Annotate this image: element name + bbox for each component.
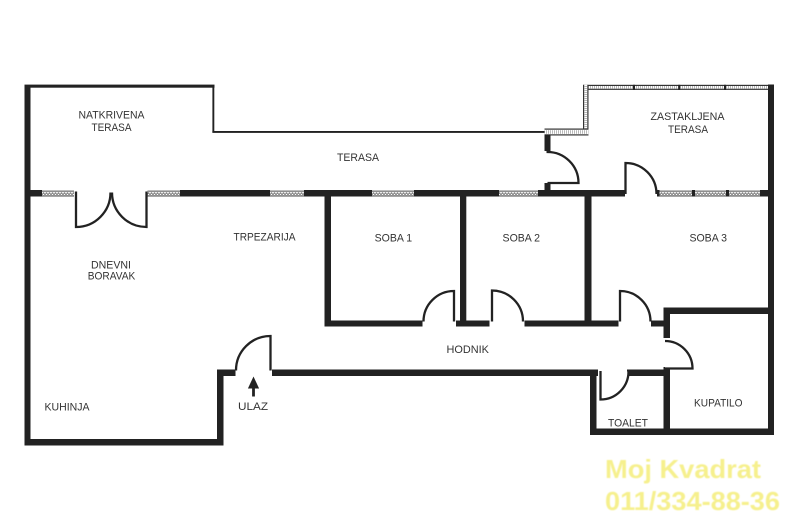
svg-text:TERASA: TERASA xyxy=(92,122,133,134)
svg-text:KUHINJA: KUHINJA xyxy=(45,402,91,414)
svg-text:TRPEZARIJA: TRPEZARIJA xyxy=(234,232,297,244)
svg-text:ZASTAKLJENA: ZASTAKLJENA xyxy=(651,111,726,123)
svg-text:BORAVAK: BORAVAK xyxy=(88,270,136,282)
svg-text:SOBA 2: SOBA 2 xyxy=(503,233,541,245)
svg-text:ULAZ: ULAZ xyxy=(238,401,268,413)
svg-text:TERASA: TERASA xyxy=(337,152,380,164)
svg-text:SOBA 3: SOBA 3 xyxy=(689,233,727,245)
svg-text:NATKRIVENA: NATKRIVENA xyxy=(79,110,146,122)
svg-text:HODNIK: HODNIK xyxy=(447,344,490,356)
svg-text:KUPATILO: KUPATILO xyxy=(694,398,743,410)
svg-text:SOBA 1: SOBA 1 xyxy=(375,233,413,245)
svg-text:TERASA: TERASA xyxy=(668,124,709,136)
svg-text:011/334-88-36: 011/334-88-36 xyxy=(605,486,780,516)
svg-text:Moj Kvadrat: Moj Kvadrat xyxy=(605,454,761,484)
svg-text:TOALET: TOALET xyxy=(608,417,648,429)
